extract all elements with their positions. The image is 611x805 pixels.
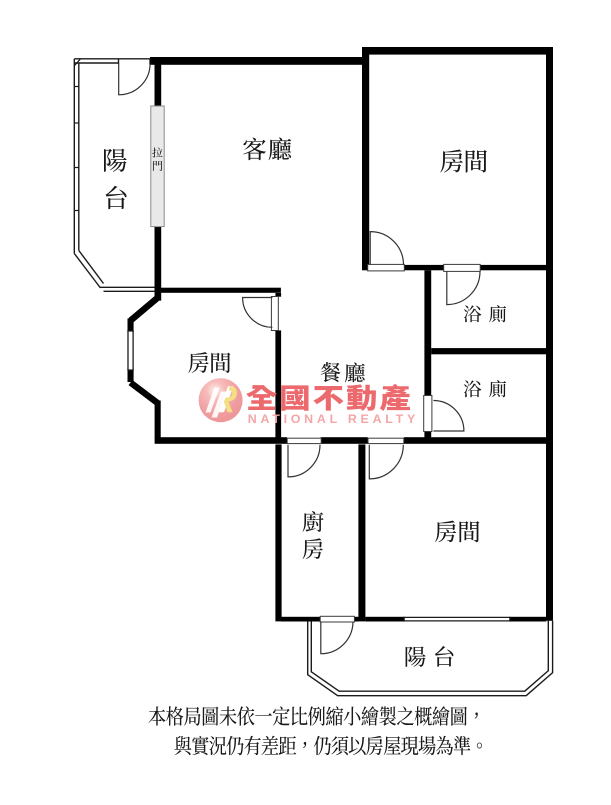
svg-text:NATIONAL REALTY: NATIONAL REALTY <box>248 412 419 426</box>
